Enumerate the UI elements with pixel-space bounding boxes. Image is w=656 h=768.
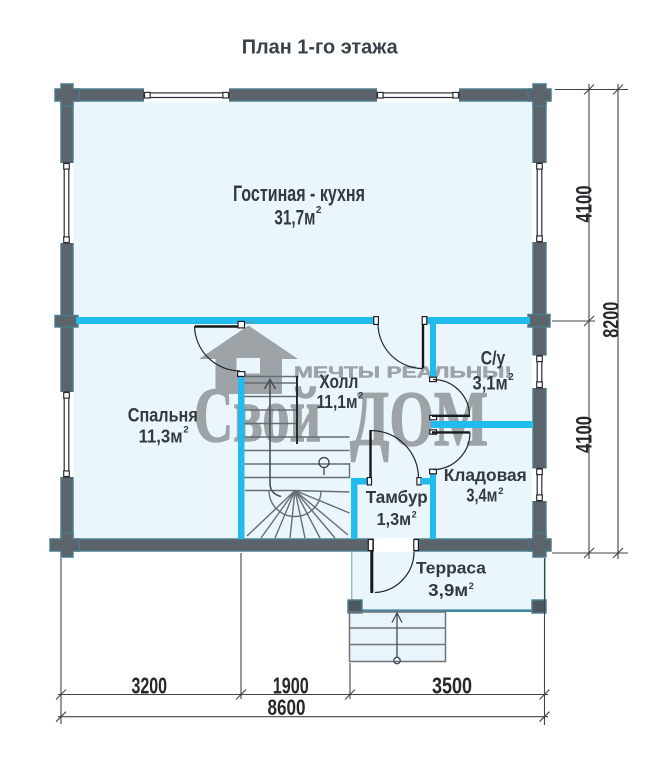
svg-text:3,9м: 3,9м [428, 580, 468, 600]
svg-text:План 1-го этажа: План 1-го этажа [242, 36, 399, 59]
svg-text:2: 2 [508, 372, 514, 383]
svg-text:Спальня: Спальня [128, 405, 198, 427]
svg-text:31,7м: 31,7м [274, 206, 315, 230]
svg-text:11,1м: 11,1м [317, 392, 358, 412]
svg-text:3200: 3200 [131, 673, 167, 699]
svg-text:8200: 8200 [598, 302, 623, 338]
svg-text:Кладовая: Кладовая [444, 465, 527, 485]
svg-text:1,3м: 1,3м [377, 509, 412, 529]
svg-text:С/у: С/у [481, 347, 506, 369]
svg-text:2: 2 [469, 581, 474, 591]
svg-text:3,4м: 3,4м [466, 486, 497, 506]
svg-text:4100: 4100 [571, 416, 596, 453]
svg-text:Холл: Холл [319, 372, 358, 393]
svg-text:Гостиная - кухня: Гостиная - кухня [233, 181, 365, 206]
svg-text:8600: 8600 [268, 695, 306, 720]
svg-text:2: 2 [498, 486, 503, 497]
svg-text:2: 2 [183, 425, 188, 436]
svg-text:11,3м: 11,3м [139, 427, 183, 447]
svg-text:2: 2 [358, 391, 363, 402]
svg-text:2: 2 [316, 205, 322, 216]
svg-text:3500: 3500 [432, 673, 472, 699]
svg-text:2: 2 [412, 510, 417, 520]
svg-text:4100: 4100 [571, 186, 596, 223]
svg-text:Терраса: Терраса [416, 558, 487, 577]
svg-text:Тамбур: Тамбур [366, 487, 428, 507]
svg-text:Свой: Свой [194, 371, 321, 458]
svg-text:3,1м: 3,1м [473, 373, 508, 395]
